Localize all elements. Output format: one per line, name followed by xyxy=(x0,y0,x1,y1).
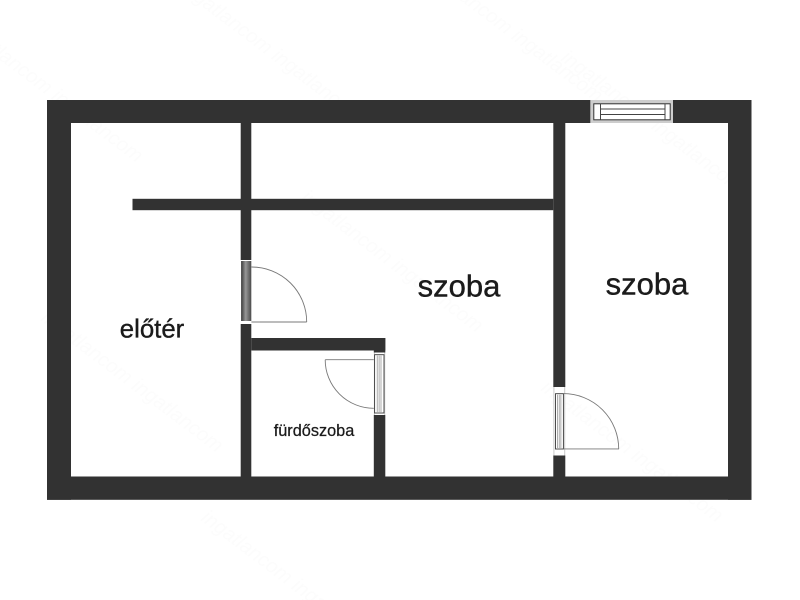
svg-text:szoba: szoba xyxy=(606,267,689,302)
svg-text:fürdőszoba: fürdőszoba xyxy=(274,422,356,440)
svg-text:előtér: előtér xyxy=(120,316,185,344)
svg-text:szoba: szoba xyxy=(418,269,501,304)
